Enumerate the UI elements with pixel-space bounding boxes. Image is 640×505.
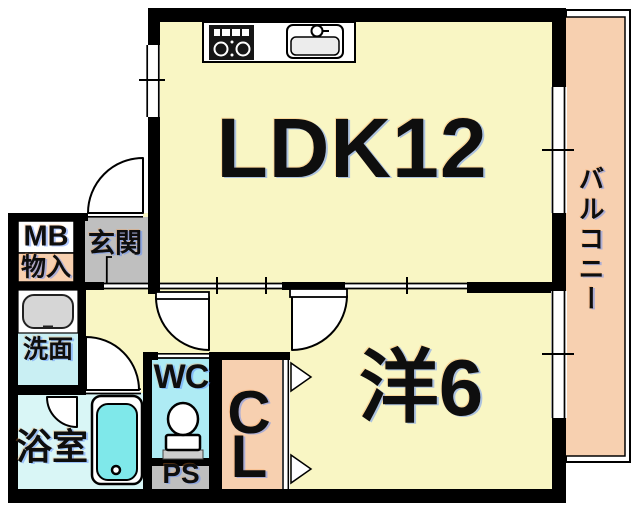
washroom-label: 洗面	[23, 338, 73, 363]
closet-label: CL	[223, 391, 275, 479]
pipe-space-label: PS	[162, 460, 199, 488]
kitchen-counter	[203, 22, 355, 62]
washbasin-icon	[23, 295, 73, 328]
kitchen-sink-icon	[287, 25, 343, 58]
bathroom-label: 浴室	[16, 429, 88, 465]
stove-icon	[209, 25, 254, 60]
meter-box-label: MB	[23, 223, 68, 252]
floor-plan: LDK12 洋6 バルコニー 玄関 MB 物入 洗面 浴室 WC PS CL	[0, 0, 640, 505]
entrance-label: 玄関	[88, 231, 142, 258]
bathtub-icon	[92, 396, 142, 484]
storage-label: 物入	[21, 256, 71, 281]
western-room-label: 洋6	[359, 348, 484, 428]
toilet-label: WC	[154, 360, 209, 394]
balcony-label: バルコニー	[577, 165, 603, 315]
ldk-label: LDK12	[216, 106, 487, 190]
